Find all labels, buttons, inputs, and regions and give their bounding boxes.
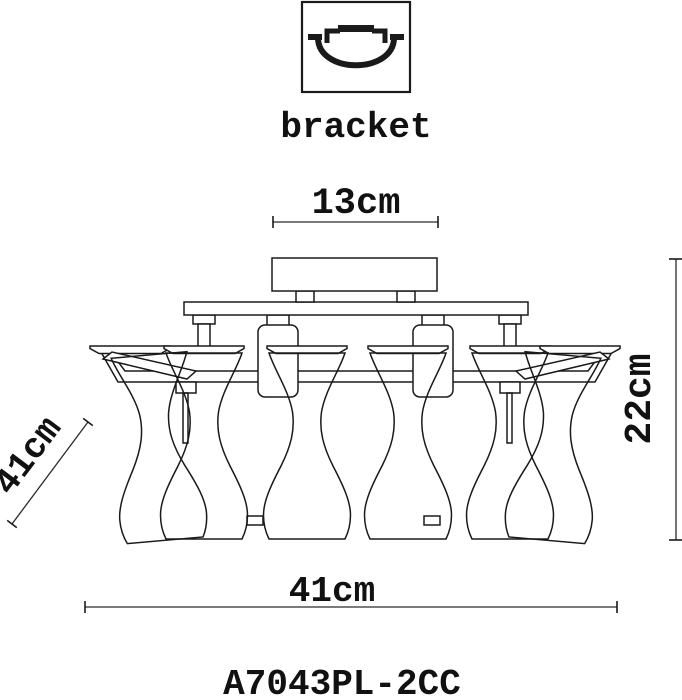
bracket-label: bracket [280,107,431,148]
dimension-diagram-page: bracket 13cm [0,0,682,700]
front-lamp-holders [258,315,453,397]
bracket-mount-icon [302,2,410,92]
dim-fixture-depth-value: 41cm [0,409,71,503]
fixture-dimension-drawing: bracket 13cm [0,0,682,700]
dim-canopy-width: 13cm [273,183,438,228]
ceiling-light-fixture [90,258,620,544]
dim-fixture-width: 41cm [85,571,617,613]
dim-fixture-width-value: 41cm [289,571,375,612]
dim-canopy-width-value: 13cm [312,183,401,225]
dim-fixture-height: 22cm [619,259,682,540]
dim-fixture-height-value: 22cm [619,353,662,444]
dim-fixture-depth: 41cm [0,409,93,527]
ceiling-canopy [272,258,437,291]
canopy-stem-left [296,291,314,302]
canopy-stem-right [397,291,415,302]
mounting-bar [184,302,528,315]
model-number: A7043PL-2CC [223,664,461,700]
back-lamp-holders [193,315,521,348]
